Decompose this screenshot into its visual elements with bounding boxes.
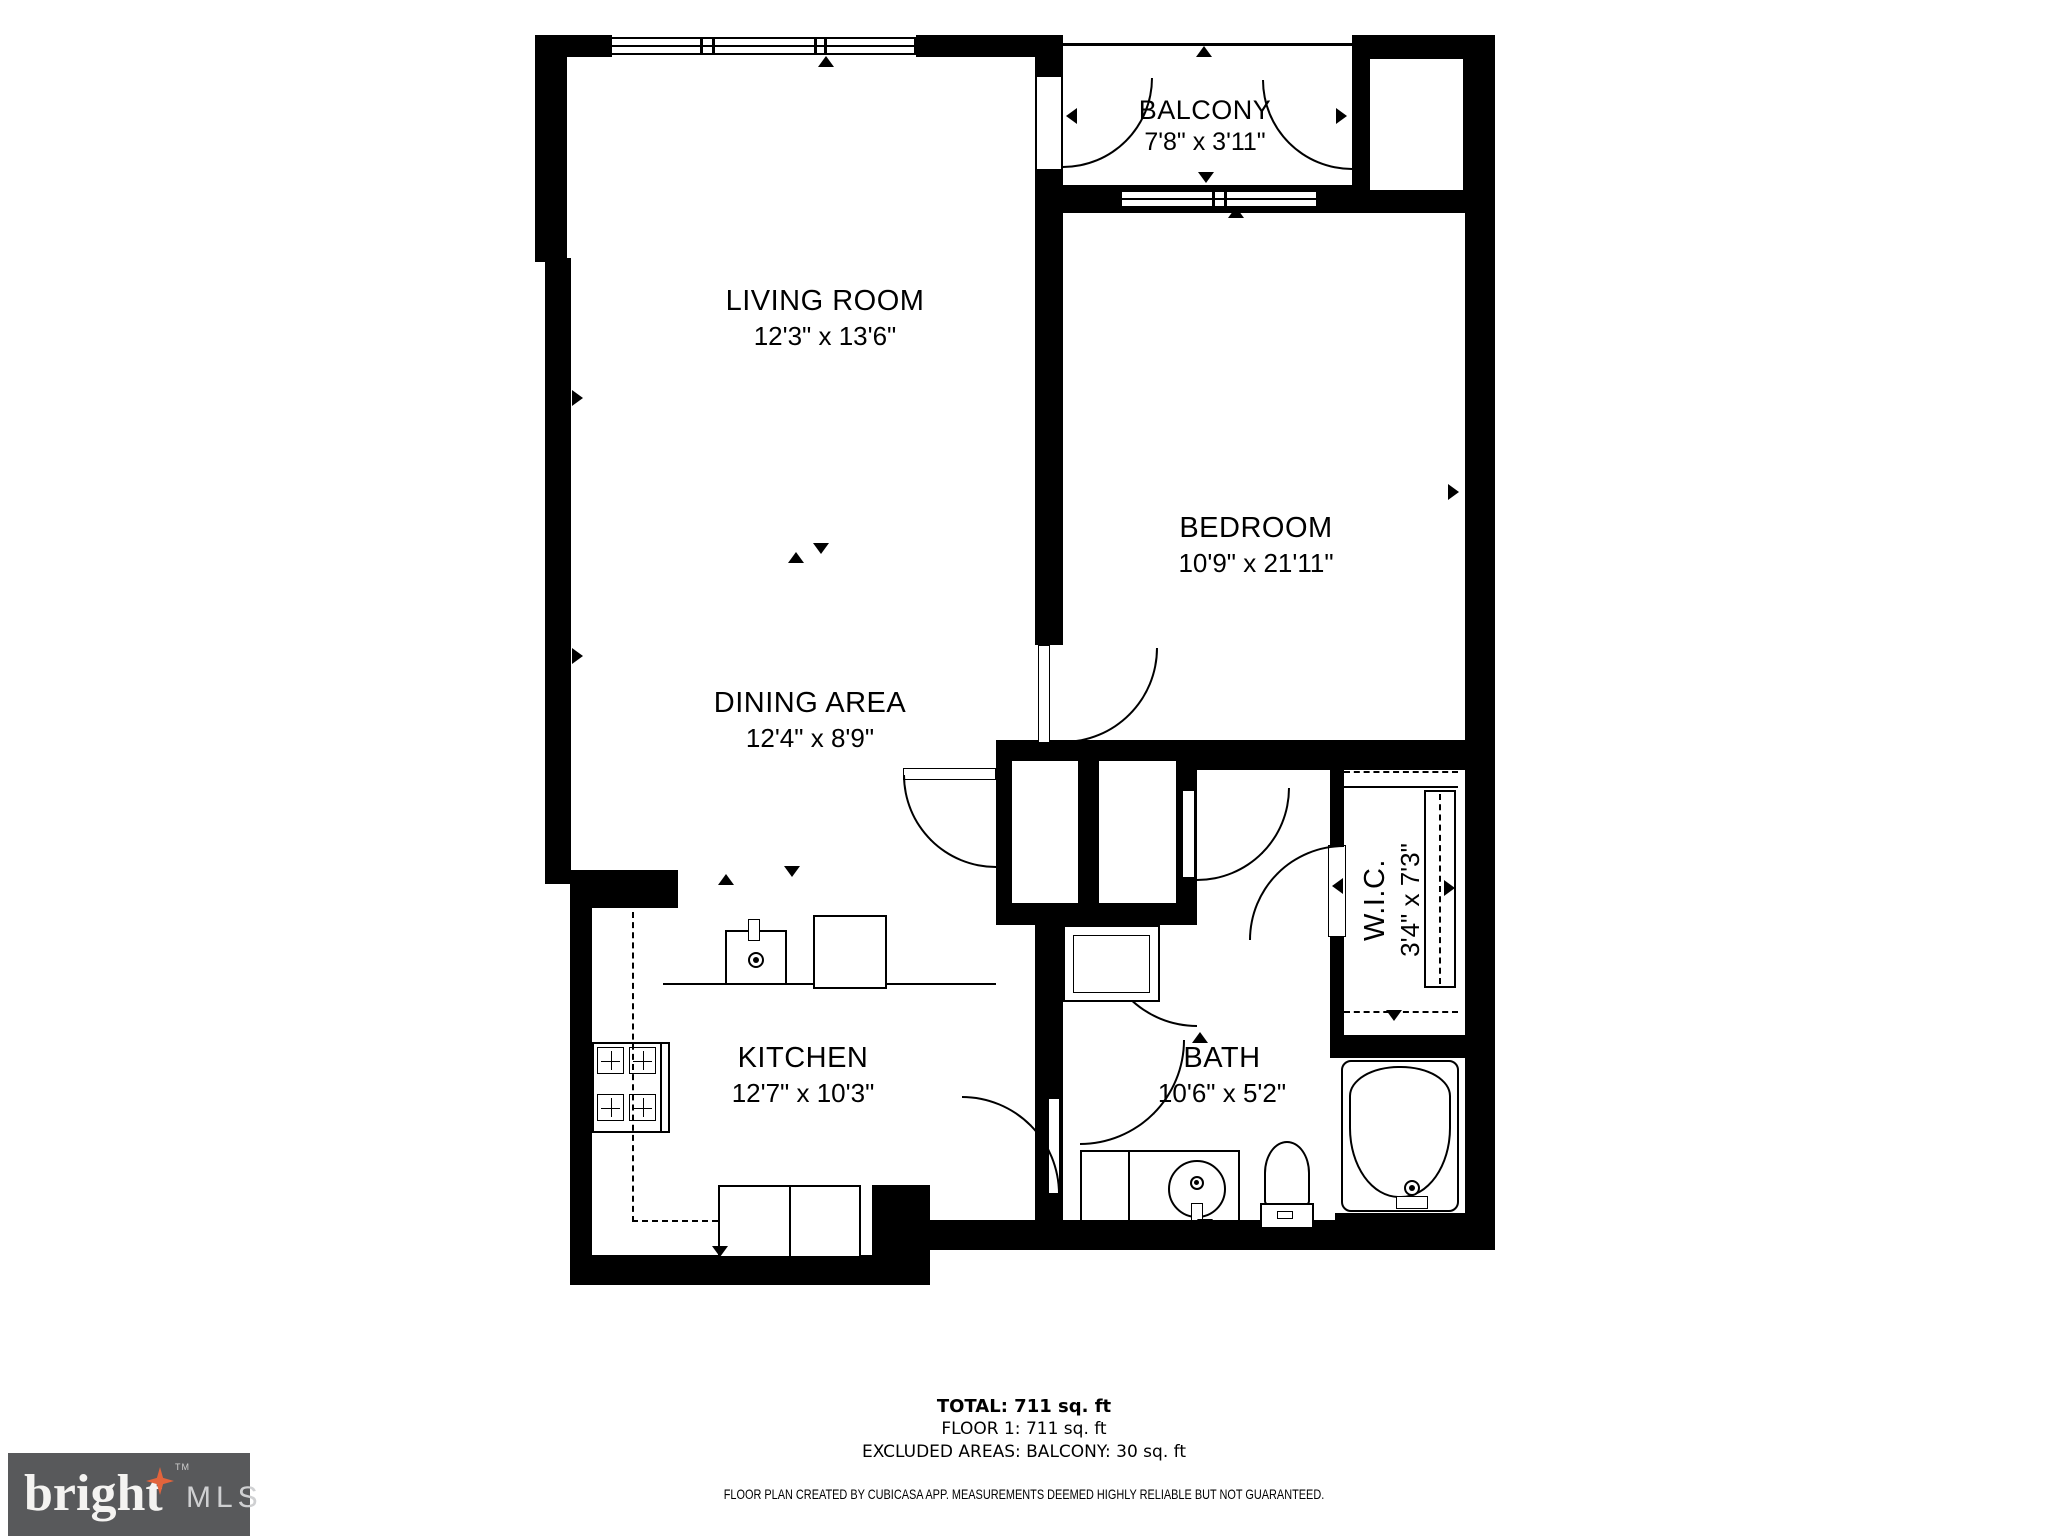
room-dims: 10'9" x 21'11" <box>1178 546 1333 580</box>
room-name: DINING AREA <box>714 685 906 721</box>
marker-icon <box>1386 1010 1402 1021</box>
window-mullion <box>814 37 817 55</box>
window-mullion <box>1212 190 1215 208</box>
room-dims: 12'7" x 10'3" <box>732 1076 875 1110</box>
wall <box>1330 770 1344 845</box>
room-label-balcony: BALCONY 7'8" x 3'11" <box>1139 94 1272 158</box>
window-glass-line <box>1122 198 1316 200</box>
stove-burner <box>597 1094 624 1121</box>
wall <box>570 870 678 908</box>
bathtub-knob-dot <box>1409 1185 1415 1191</box>
room-name: LIVING ROOM <box>726 283 925 319</box>
room-label-living: LIVING ROOM 12'3" x 13'6" <box>726 283 925 353</box>
closet <box>1097 759 1178 905</box>
door-arc <box>1249 845 1344 940</box>
window-mullion <box>824 37 827 55</box>
excluded-area-text: EXCLUDED AREAS: BALCONY: 30 sq. ft <box>0 1442 2048 1462</box>
wall <box>1330 1035 1465 1058</box>
door-arc <box>903 775 996 868</box>
floor-area-text: FLOOR 1: 711 sq. ft <box>0 1419 2048 1439</box>
room-label-kitchen: KITCHEN 12'7" x 10'3" <box>732 1040 875 1110</box>
stove-burner <box>597 1047 624 1074</box>
wic-dashed-line <box>1344 771 1458 773</box>
marker-icon <box>1336 108 1347 124</box>
kitchen-faucet <box>748 919 760 941</box>
wall <box>1465 35 1495 1250</box>
closet <box>1010 759 1080 905</box>
room-label-bath: BATH 10'6" x 5'2" <box>1158 1040 1286 1110</box>
room-label-dining: DINING AREA 12'4" x 8'9" <box>714 685 906 755</box>
marker-icon <box>577 1122 588 1138</box>
upper-cabinet-dashed-line <box>632 1220 718 1222</box>
window-mullion <box>700 37 703 55</box>
room-dims: 10'6" x 5'2" <box>1158 1076 1286 1110</box>
wall <box>535 35 567 262</box>
wall <box>545 258 571 884</box>
room-name: KITCHEN <box>732 1040 875 1076</box>
upper-cabinet-dashed-line <box>632 912 634 1222</box>
marker-icon <box>784 866 800 877</box>
wall <box>1330 937 1344 1035</box>
stove-edge-line <box>660 1044 662 1131</box>
marker-icon <box>788 552 804 563</box>
marker-icon <box>818 56 834 67</box>
kitchen-drain-dot <box>753 957 759 963</box>
total-area-text: TOTAL: 711 sq. ft <box>0 1396 2048 1417</box>
marker-icon <box>1444 880 1455 896</box>
floor-plan-page: LIVING ROOM 12'3" x 13'6" BALCONY 7'8" x… <box>0 0 2048 1536</box>
toilet-bowl <box>1264 1141 1310 1207</box>
door-arc <box>1063 648 1158 743</box>
closet-door-leaf <box>1182 790 1195 878</box>
logo-mls-text: MLS <box>186 1481 263 1515</box>
marker-icon <box>1066 108 1077 124</box>
marker-icon <box>1332 878 1343 894</box>
bright-mls-logo: bright TM MLS <box>8 1453 250 1536</box>
bathtub-basin <box>1349 1066 1451 1198</box>
room-dims: 3'4" x 7'3" <box>1393 843 1427 957</box>
marker-icon <box>1228 207 1244 218</box>
linen-closet-shelf <box>1073 935 1150 993</box>
marker-icon <box>813 543 829 554</box>
bathroom-sink-dot <box>1194 1180 1199 1185</box>
floor-plan: LIVING ROOM 12'3" x 13'6" BALCONY 7'8" x… <box>0 0 2048 1536</box>
marker-icon <box>1197 1219 1213 1230</box>
bedroom-door-leaf <box>1038 645 1050 743</box>
balcony-corner-room <box>1368 57 1465 192</box>
marker-icon <box>718 874 734 885</box>
window-mullion <box>712 37 715 55</box>
window-mullion <box>1224 190 1227 208</box>
room-name: BALCONY <box>1139 94 1272 127</box>
balcony-door-gap <box>1035 75 1063 171</box>
marker-icon <box>1196 46 1212 57</box>
room-label-bedroom: BEDROOM 10'9" x 21'11" <box>1178 510 1333 580</box>
window <box>610 37 916 55</box>
window <box>1120 190 1318 208</box>
marker-icon <box>712 1246 728 1257</box>
wall <box>1352 57 1368 192</box>
room-name: BATH <box>1158 1040 1286 1076</box>
wic-rod-dashed-line <box>1439 794 1441 984</box>
disclaimer-text: FLOOR PLAN CREATED BY CUBICASA APP. MEAS… <box>225 1486 1822 1502</box>
room-dims: 12'4" x 8'9" <box>714 721 906 755</box>
wall <box>570 908 592 1285</box>
room-name: W.I.C. <box>1357 843 1393 957</box>
room-dims: 7'8" x 3'11" <box>1139 127 1272 158</box>
kitchen-cabinet-divider <box>789 1185 791 1258</box>
room-label-wic: W.I.C. 3'4" x 7'3" <box>1357 843 1427 957</box>
marker-icon <box>572 648 583 664</box>
trademark-text: TM <box>175 1462 190 1472</box>
room-name: BEDROOM <box>1178 510 1333 546</box>
wic-shelf-line <box>1344 786 1458 788</box>
wall <box>1197 740 1465 770</box>
logo-brand-text: bright <box>24 1449 163 1536</box>
toilet-handle <box>1277 1211 1293 1219</box>
marker-icon <box>572 390 583 406</box>
wall <box>1335 1213 1465 1250</box>
marker-icon <box>1448 484 1459 500</box>
door-arc <box>1262 80 1352 170</box>
door-arc <box>1197 788 1290 881</box>
window-glass-line <box>612 45 914 47</box>
refrigerator <box>813 915 887 989</box>
room-dims: 12'3" x 13'6" <box>726 319 925 353</box>
bathtub-faucet <box>1396 1196 1428 1209</box>
marker-icon <box>1198 172 1214 183</box>
vanity-divider <box>1128 1150 1130 1222</box>
